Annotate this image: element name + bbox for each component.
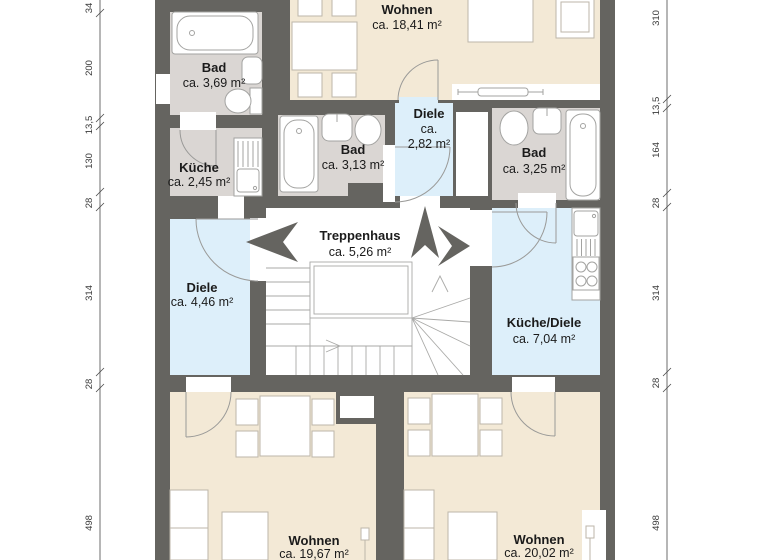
chair xyxy=(236,399,258,425)
room-label: Bad xyxy=(522,145,547,160)
dim-label: 498 xyxy=(651,515,662,531)
opening-treppe-wohnen-left xyxy=(186,377,231,392)
room-label: Wohnen xyxy=(513,532,564,547)
opening-diele-kueche xyxy=(218,196,244,219)
shaft-niche xyxy=(456,112,488,196)
opening-kuechediele-wohnen xyxy=(512,377,555,392)
chair xyxy=(332,73,356,97)
opening-wohnen-diele xyxy=(399,97,438,106)
opening-bad-kuechediele xyxy=(518,193,556,208)
floor-plan: Wohnen ca. 18,41 m² Bad ca. 3,69 m² Küch… xyxy=(0,0,768,560)
chair xyxy=(408,430,430,456)
niche-bottom-left-room xyxy=(340,396,374,418)
opening-treppe-kuechediele xyxy=(470,210,492,266)
chair xyxy=(312,431,334,457)
dim-label: 34 xyxy=(84,3,95,14)
chair xyxy=(236,431,258,457)
room-area-label: ca. 7,04 m² xyxy=(513,332,576,346)
dim-label: 130 xyxy=(84,153,95,169)
dim-label: 28 xyxy=(651,378,662,389)
sink-icon xyxy=(237,169,259,192)
desk xyxy=(556,0,594,38)
bathtub-icon xyxy=(172,12,258,54)
dimension-line-left: 34 200 13,5 130 28 314 28 498 xyxy=(84,0,104,560)
kueche-fixtures xyxy=(234,138,262,196)
room-label: Diele xyxy=(186,280,217,295)
chair xyxy=(480,430,502,456)
bed xyxy=(468,0,533,42)
chair xyxy=(298,0,322,16)
chair xyxy=(408,398,430,424)
room-area-label: ca. 20,02 m² xyxy=(504,546,573,560)
opening-bad-diele xyxy=(383,145,395,202)
opening-kueche-bad xyxy=(180,112,216,130)
opening-diele-treppe xyxy=(400,196,440,208)
room-area-label: ca. 4,46 m² xyxy=(171,295,234,309)
dim-label: 314 xyxy=(651,285,662,301)
wardrobe xyxy=(404,490,434,560)
chair xyxy=(480,398,502,424)
dim-label: 28 xyxy=(84,379,95,390)
wall-shaft-bad-mid xyxy=(348,183,385,196)
toilet-icon xyxy=(225,89,251,113)
toilet-icon xyxy=(355,115,381,145)
opening-treppe-diele-left xyxy=(250,218,266,281)
room-label: Bad xyxy=(202,60,227,75)
bed xyxy=(448,512,497,560)
dim-label: 498 xyxy=(84,515,95,531)
kueche-diele-fixtures xyxy=(572,208,600,300)
room-area-label: ca. 3,13 m² xyxy=(322,158,385,172)
dining-table xyxy=(260,396,310,456)
window-niche-left xyxy=(156,74,170,104)
dining-table xyxy=(432,394,478,456)
dim-label: 164 xyxy=(651,142,662,158)
room-label: Küche xyxy=(179,160,219,175)
room-label: Wohnen xyxy=(288,533,339,548)
dim-label: 13,5 xyxy=(651,97,662,116)
room-label: Treppenhaus xyxy=(320,228,401,243)
dim-label: 13,5 xyxy=(84,116,95,135)
toilet-tank xyxy=(250,88,262,114)
dining-table xyxy=(292,22,357,70)
bed xyxy=(222,512,268,560)
stair-landing xyxy=(310,262,412,318)
room-area-label: ca. 2,45 m² xyxy=(168,175,231,189)
dim-label: 314 xyxy=(84,285,95,301)
toilet-icon xyxy=(500,111,528,145)
wardrobe xyxy=(170,490,208,560)
room-label: Bad xyxy=(341,142,366,157)
chair xyxy=(312,399,334,425)
dim-label: 28 xyxy=(651,198,662,209)
room-label: Diele xyxy=(413,106,444,121)
room-area-label: ca. 18,41 m² xyxy=(372,18,441,32)
dim-label: 310 xyxy=(651,10,662,26)
chair xyxy=(298,73,322,97)
room-label: Küche/Diele xyxy=(507,315,581,330)
room-label: Wohnen xyxy=(381,2,432,17)
chair xyxy=(332,0,356,16)
room-area-label: ca. 19,67 m² xyxy=(279,547,348,560)
dim-label: 28 xyxy=(84,198,95,209)
room-area-label: ca. 3,69 m² xyxy=(183,76,246,90)
dimension-line-right: 310 13,5 164 28 314 28 498 xyxy=(651,0,671,560)
room-area-label: ca. xyxy=(421,122,438,136)
dim-label: 200 xyxy=(84,60,95,76)
room-area-label: ca. 5,26 m² xyxy=(329,245,392,259)
room-area-label: 2,82 m² xyxy=(408,137,450,151)
room-area-label: ca. 3,25 m² xyxy=(503,162,566,176)
